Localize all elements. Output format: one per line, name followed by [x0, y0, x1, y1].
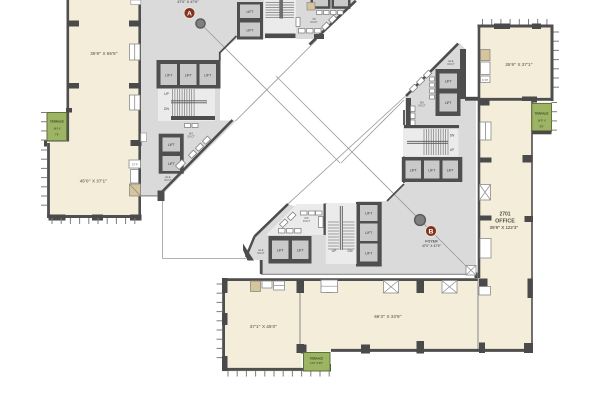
- svg-text:TERRACE: TERRACE: [310, 357, 324, 361]
- svg-text:LIFT: LIFT: [168, 143, 175, 147]
- svg-text:LIFT: LIFT: [428, 169, 435, 173]
- svg-text:LIFT: LIFT: [204, 74, 211, 78]
- svg-text:LIFT: LIFT: [445, 101, 452, 105]
- svg-text:LIFT: LIFT: [168, 162, 175, 166]
- svg-text:LIFT: LIFT: [410, 169, 417, 173]
- svg-text:DUCT: DUCT: [257, 251, 265, 255]
- svg-text:7'6": 7'6": [55, 133, 59, 137]
- svg-text:LIFT: LIFT: [277, 249, 284, 253]
- svg-text:LIFT: LIFT: [445, 80, 452, 84]
- svg-text:47'0" X 47'9": 47'0" X 47'9": [177, 0, 199, 4]
- svg-text:DUCT: DUCT: [447, 62, 455, 66]
- svg-text:LIFT: LIFT: [365, 212, 372, 216]
- svg-text:DUCT: DUCT: [418, 104, 426, 108]
- svg-text:OFFICE: OFFICE: [495, 219, 515, 225]
- svg-text:DUCT: DUCT: [310, 20, 318, 24]
- svg-text:37'1" X 45'0": 37'1" X 45'0": [250, 324, 278, 329]
- svg-text:9'0": 9'0": [539, 125, 543, 129]
- svg-text:DN: DN: [450, 134, 455, 138]
- svg-text:LIFT: LIFT: [365, 252, 372, 256]
- svg-text:UP: UP: [450, 148, 454, 152]
- svg-text:DUCT: DUCT: [164, 178, 172, 182]
- svg-text:14'0 X: 14'0 X: [53, 127, 61, 131]
- svg-text:LIFT: LIFT: [247, 10, 254, 14]
- svg-text:UP: UP: [332, 249, 337, 253]
- svg-text:LIFT: LIFT: [297, 249, 304, 253]
- svg-text:DUCT: DUCT: [187, 135, 195, 139]
- svg-text:S.T.P: S.T.P: [132, 163, 138, 166]
- svg-text:14'0" X: 14'0" X: [537, 119, 545, 123]
- svg-text:LIFT: LIFT: [365, 231, 372, 235]
- svg-text:S.T.P: S.T.P: [482, 78, 488, 82]
- svg-text:UP: UP: [164, 92, 169, 96]
- svg-text:66'3" X 33'9": 66'3" X 33'9": [374, 314, 402, 319]
- svg-text:35'9" X 66'5": 35'9" X 66'5": [90, 51, 118, 56]
- svg-text:35'9" X 37'1": 35'9" X 37'1": [505, 62, 533, 67]
- svg-text:DUCT: DUCT: [303, 219, 311, 223]
- svg-text:LIFT: LIFT: [247, 29, 254, 33]
- svg-text:35'9" X 122'3": 35'9" X 122'3": [490, 225, 519, 230]
- svg-text:47'0" X 47'9": 47'0" X 47'9": [422, 244, 442, 248]
- svg-text:TERRACE: TERRACE: [50, 120, 64, 124]
- svg-text:2701: 2701: [499, 211, 510, 217]
- svg-text:LIFT: LIFT: [185, 74, 192, 78]
- svg-text:LIFT: LIFT: [447, 169, 454, 173]
- svg-text:DN: DN: [164, 107, 169, 111]
- svg-text:14'0" X 9'0": 14'0" X 9'0": [310, 362, 323, 365]
- svg-text:TERRACE: TERRACE: [535, 112, 549, 116]
- svg-text:LIFT: LIFT: [165, 74, 172, 78]
- svg-text:45'0" X 37'1": 45'0" X 37'1": [80, 179, 108, 184]
- svg-text:A: A: [187, 10, 192, 17]
- svg-text:DN: DN: [348, 249, 353, 253]
- svg-text:B: B: [429, 228, 434, 235]
